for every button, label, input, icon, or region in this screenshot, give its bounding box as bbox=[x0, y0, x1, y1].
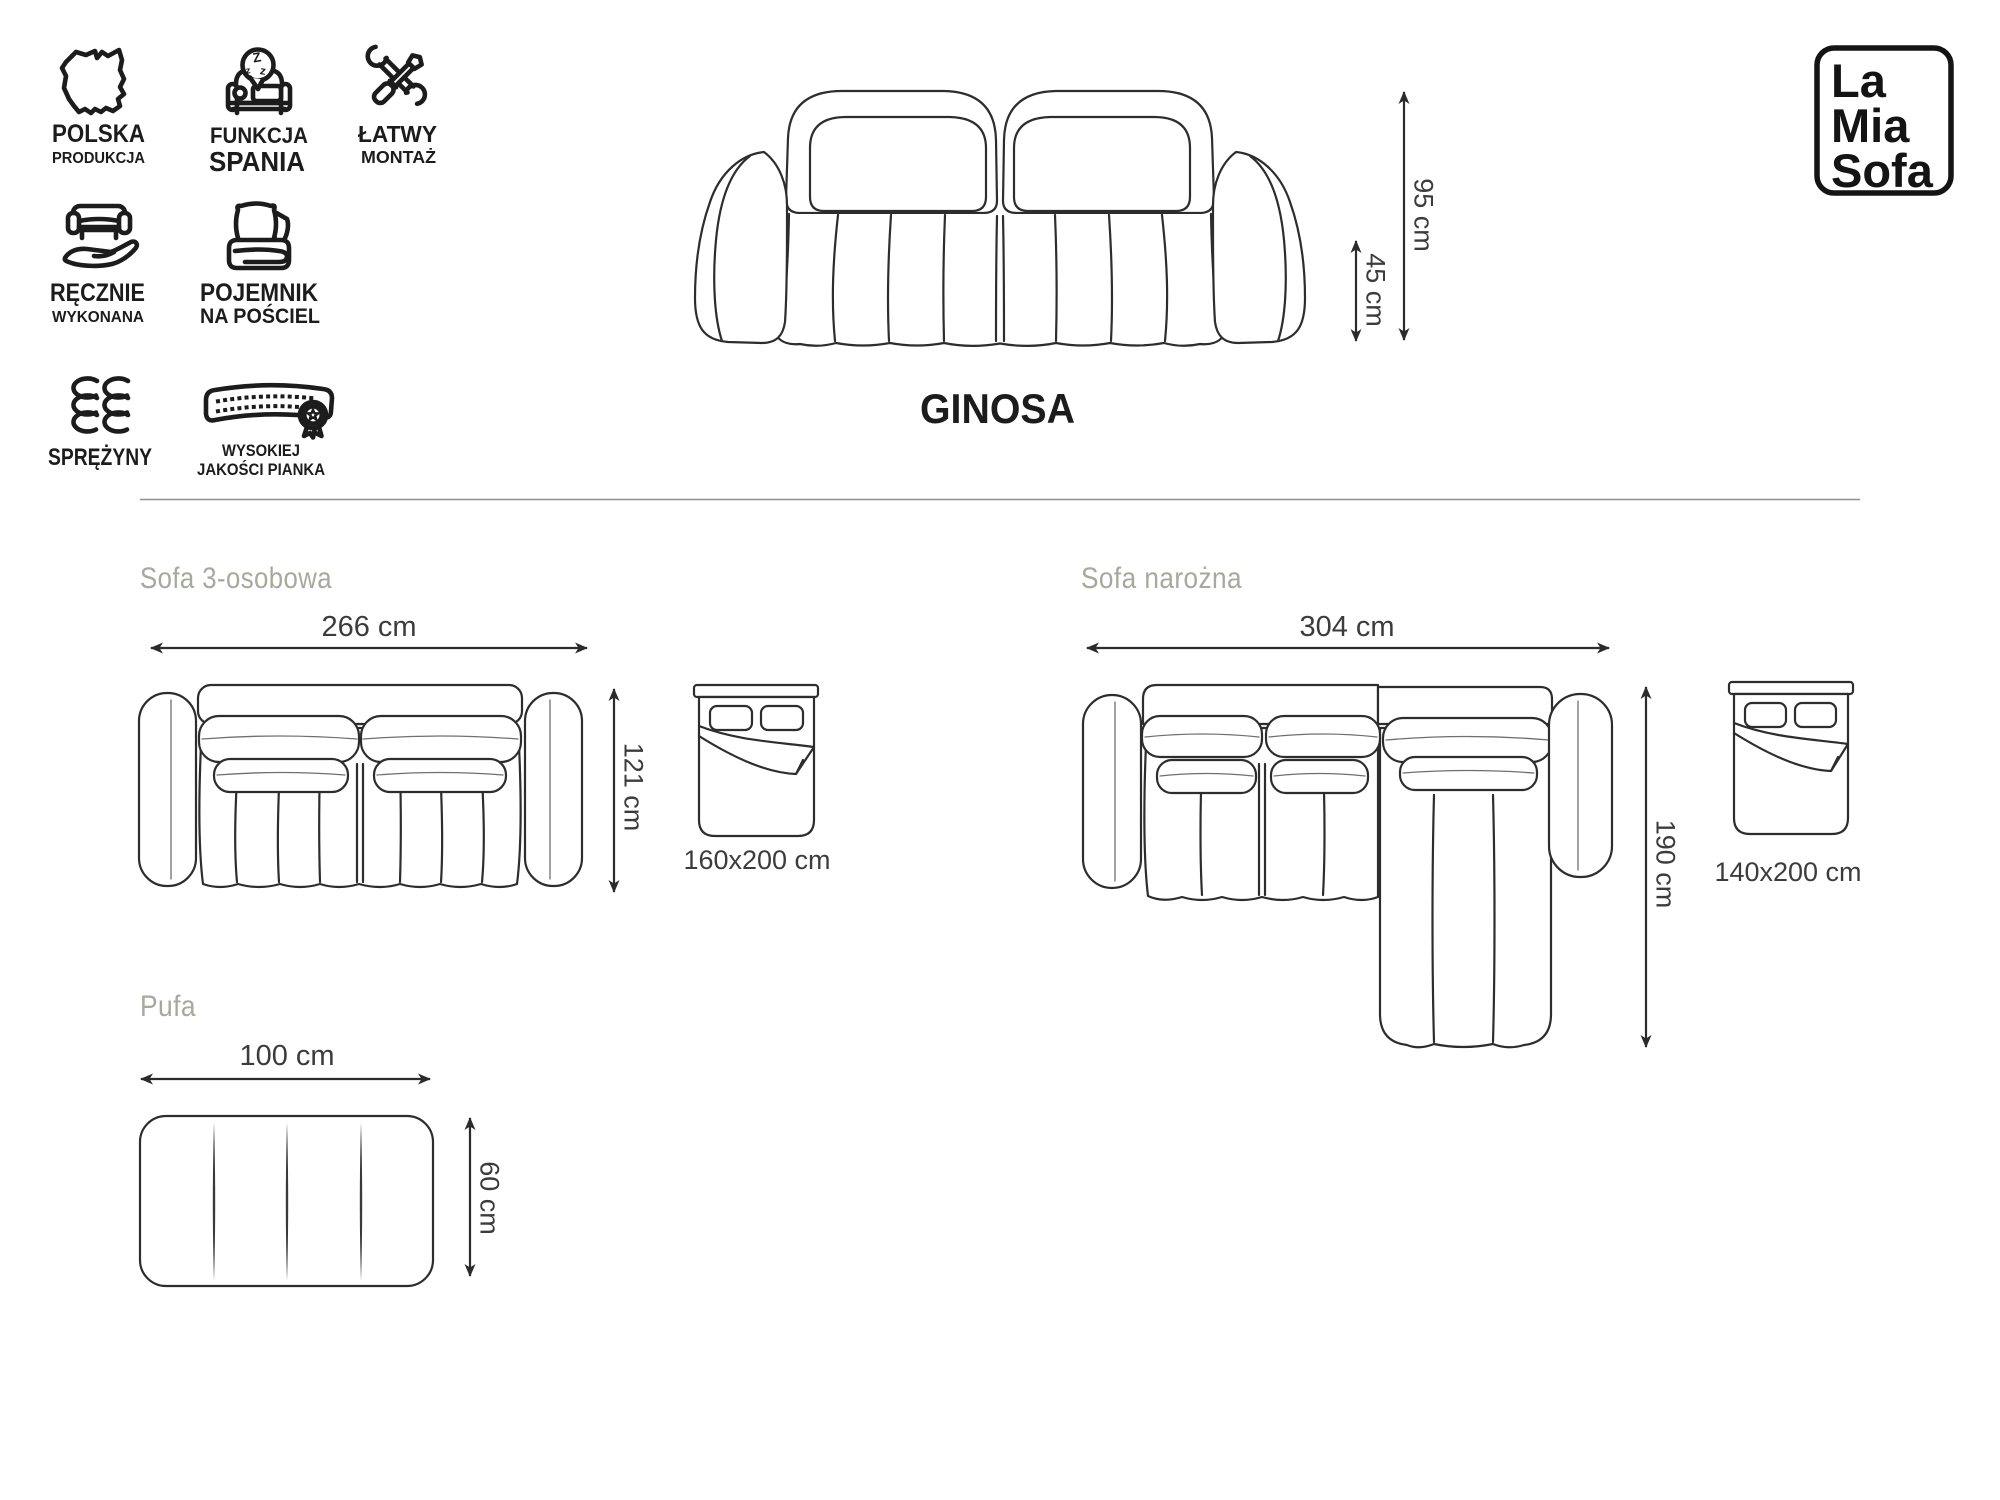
svg-text:PRODUKCJA: PRODUKCJA bbox=[52, 150, 145, 167]
svg-text:GINOSA: GINOSA bbox=[920, 385, 1075, 432]
svg-text:100 cm: 100 cm bbox=[239, 1040, 334, 1072]
svg-text:NA POŚCIEL: NA POŚCIEL bbox=[200, 304, 320, 328]
svg-text:WYSOKIEJ: WYSOKIEJ bbox=[222, 441, 300, 460]
svg-text:Pufa: Pufa bbox=[140, 990, 196, 1023]
svg-text:Sofa: Sofa bbox=[1831, 144, 1934, 197]
svg-text:Sofa narożna: Sofa narożna bbox=[1081, 562, 1242, 595]
svg-text:JAKOŚCI PIANKA: JAKOŚCI PIANKA bbox=[197, 460, 325, 479]
svg-text:121 cm: 121 cm bbox=[619, 743, 649, 832]
svg-text:SPANIA: SPANIA bbox=[209, 146, 305, 177]
svg-text:160x200 cm: 160x200 cm bbox=[683, 845, 830, 875]
svg-text:WYKONANA: WYKONANA bbox=[52, 309, 144, 326]
svg-text:SPRĘŻYNY: SPRĘŻYNY bbox=[48, 444, 152, 471]
svg-text:266 cm: 266 cm bbox=[321, 611, 416, 643]
svg-text:FUNKCJA: FUNKCJA bbox=[210, 123, 308, 148]
svg-text:60 cm: 60 cm bbox=[475, 1161, 505, 1235]
svg-text:RĘCZNIE: RĘCZNIE bbox=[50, 279, 145, 307]
svg-text:45 cm: 45 cm bbox=[1361, 253, 1391, 327]
svg-text:POJEMNIK: POJEMNIK bbox=[200, 279, 318, 307]
svg-text:95 cm: 95 cm bbox=[1409, 178, 1439, 252]
svg-text:190 cm: 190 cm bbox=[1651, 820, 1681, 909]
svg-text:MONTAŻ: MONTAŻ bbox=[361, 147, 436, 167]
svg-text:ŁATWY: ŁATWY bbox=[358, 121, 437, 147]
svg-text:304 cm: 304 cm bbox=[1299, 611, 1394, 643]
svg-text:Sofa 3-osobowa: Sofa 3-osobowa bbox=[140, 562, 332, 595]
svg-text:POLSKA: POLSKA bbox=[52, 120, 145, 148]
svg-text:140x200 cm: 140x200 cm bbox=[1714, 857, 1861, 887]
